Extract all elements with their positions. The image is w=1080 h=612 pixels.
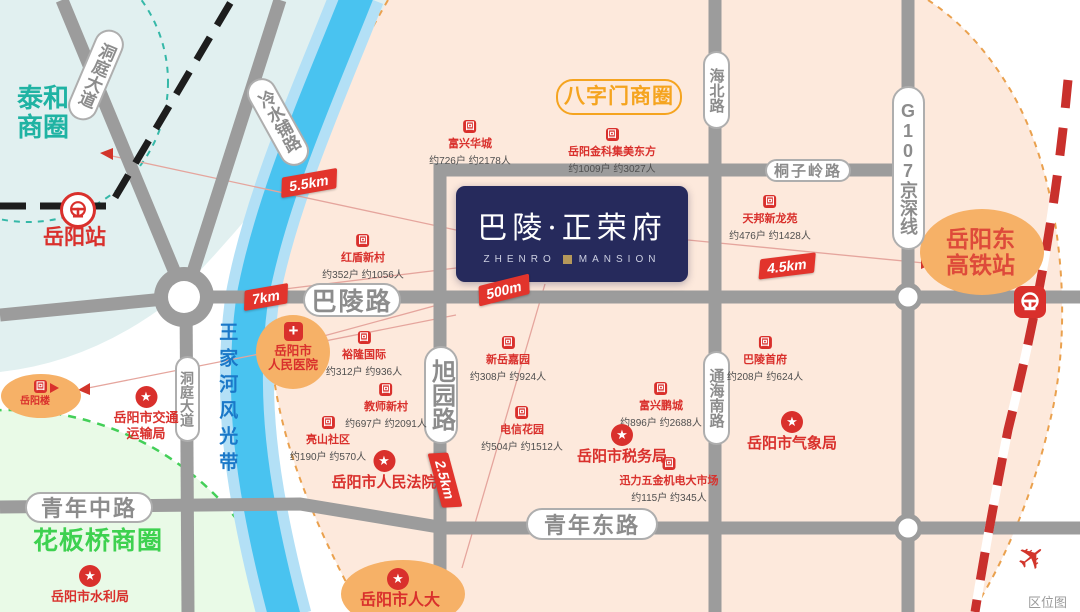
distance-4-5km: 4.5km (758, 252, 815, 279)
tower-pointer-icon (50, 383, 59, 393)
road-label-tonghai-south-road: 通海南路 (703, 351, 730, 445)
project-name-en: ZHENRO MANSION (484, 254, 661, 265)
project-en-left: ZHENRO (484, 254, 556, 265)
building-icon: 回 (322, 416, 335, 429)
building-icon: 回 (358, 331, 371, 344)
gold-square-icon (563, 255, 572, 264)
road-label-qingnian-middle-road: 青年中路 (25, 492, 153, 523)
hospital-label: 岳阳市 人民医院 (268, 344, 318, 372)
community-marker: 回红盾新村约352户 约1056人 (322, 230, 404, 281)
building-icon: 回 (357, 234, 370, 247)
yueyang-water-bureau: ★岳阳市水利局 (51, 565, 129, 605)
building-icon: 回 (606, 128, 619, 141)
river-label: 王家河风光带 (216, 322, 237, 478)
poi-label: 岳阳市人民法院 (331, 474, 436, 493)
road-label-baling-road: 巴陵路 (303, 283, 401, 317)
community-name: 岳阳金科集美东方 (568, 143, 656, 159)
hospital-cross-icon: + (284, 322, 303, 341)
distance-7km: 7km (244, 283, 288, 311)
project-name-cn: 巴陵·正荣府 (477, 203, 667, 247)
poi-label: 岳阳市气象局 (747, 435, 837, 454)
building-icon: 回 (764, 195, 777, 208)
community-name: 富兴鹏城 (620, 397, 702, 413)
road-label-qingnian-east-road: 青年东路 (526, 508, 658, 540)
location-map: 巴陵·正荣府 ZHENRO MANSION 泰和商圈 八字门商圈 花板桥商圈 岳… (0, 0, 1080, 612)
tower-label: 岳阳楼 (20, 396, 50, 407)
star-icon: ★ (79, 565, 101, 587)
community-marker: 回电信花园约504户 约1512人 (481, 402, 563, 453)
community-info: 约1009户 约3027人 (568, 160, 656, 175)
community-info: 约726户 约2178人 (429, 152, 511, 167)
community-name: 富兴华城 (429, 135, 511, 151)
community-marker: 回岳阳金科集美东方约1009户 约3027人 (568, 124, 656, 175)
building-icon: 回 (464, 120, 477, 133)
community-name: 电信花园 (481, 421, 563, 437)
community-marker: 回富兴鹏城约896户 约2688人 (620, 378, 702, 429)
road-label-lengshuipu-road: 冷水铺路 (242, 73, 315, 172)
community-info: 约115户 约345人 (620, 489, 719, 504)
yueyang-tax-bureau: ★岳阳市税务局 (577, 424, 667, 467)
community-marker: 回巴陵首府约208户 约624人 (727, 332, 803, 383)
star-icon: ★ (373, 450, 395, 472)
poi-label: 岳阳市交通运输局 (113, 410, 178, 443)
community-name: 新岳嘉园 (470, 351, 546, 367)
map-corner-label: 区位图 (1028, 592, 1067, 611)
building-icon: 回 (516, 406, 529, 419)
road-label-haibei-road: 海北路 (703, 51, 730, 129)
community-marker: 回天邦新龙苑约476户 约1428人 (729, 191, 811, 242)
community-info: 约208户 约624人 (727, 368, 803, 383)
yueyang-station-label: 岳阳站 (43, 226, 106, 250)
building-icon: 回 (759, 336, 772, 349)
building-icon: 回 (655, 382, 668, 395)
road-label-xuyuan-road: 旭园路 (424, 346, 458, 444)
road-label-g107-jingshen-line: G107京深线 (892, 86, 925, 250)
star-icon: ★ (611, 424, 633, 446)
renda-label: 岳阳市人大 (360, 592, 440, 610)
community-info: 约312户 约936人 (326, 363, 402, 378)
project-marker: 巴陵·正荣府 ZHENRO MANSION (456, 186, 688, 282)
community-marker: 回裕隆国际约312户 约936人 (326, 327, 402, 378)
east-station-label: 岳阳东 高铁站 (946, 227, 1015, 279)
road-label-dongting-avenue-north: 洞庭大道 (63, 25, 128, 125)
yueyang-meteorological-bureau: ★岳阳市气象局 (747, 411, 837, 454)
community-name: 亮山社区 (290, 431, 366, 447)
east-station-railway-icon (1014, 286, 1046, 318)
community-name: 迅力五金机电大市场 (620, 472, 719, 488)
building-icon: 回 (502, 336, 515, 349)
community-info: 约308户 约924人 (470, 368, 546, 383)
yueyang-station-railway-icon (60, 192, 96, 228)
project-en-right: MANSION (579, 254, 661, 265)
poi-label: 岳阳市税务局 (577, 448, 667, 467)
community-name: 巴陵首府 (727, 351, 803, 367)
bazimen-business-circle-label: 八字门商圈 (556, 79, 682, 115)
label-layer: 巴陵·正荣府 ZHENRO MANSION 泰和商圈 八字门商圈 花板桥商圈 岳… (0, 0, 1080, 612)
taihe-business-circle-label: 泰和商圈 (17, 84, 75, 142)
distance-5-5km: 5.5km (281, 168, 337, 198)
tower-building-icon: 回 (34, 380, 47, 393)
renda-star-icon: ★ (387, 568, 409, 590)
community-info: 约352户 约1056人 (322, 266, 404, 281)
road-label-tongziling-road: 桐子岭路 (765, 159, 851, 182)
community-name: 天邦新龙苑 (729, 210, 811, 226)
building-icon: 回 (380, 383, 393, 396)
yueyang-peoples-court: ★岳阳市人民法院 (331, 450, 436, 493)
community-marker: 回新岳嘉园约308户 约924人 (470, 332, 546, 383)
community-info: 约504户 约1512人 (481, 438, 563, 453)
community-name: 裕隆国际 (326, 346, 402, 362)
star-icon: ★ (781, 411, 803, 433)
poi-label: 岳阳市水利局 (51, 589, 129, 605)
community-name: 红盾新村 (322, 249, 404, 265)
airplane-icon: ✈ (1009, 533, 1056, 582)
star-icon: ★ (135, 386, 157, 408)
yueyang-transport-bureau: ★岳阳市交通运输局 (113, 386, 178, 443)
huabanqiao-business-circle-label: 花板桥商圈 (33, 527, 163, 555)
community-marker: 回富兴华城约726户 约2178人 (429, 116, 511, 167)
community-info: 约476户 约1428人 (729, 227, 811, 242)
